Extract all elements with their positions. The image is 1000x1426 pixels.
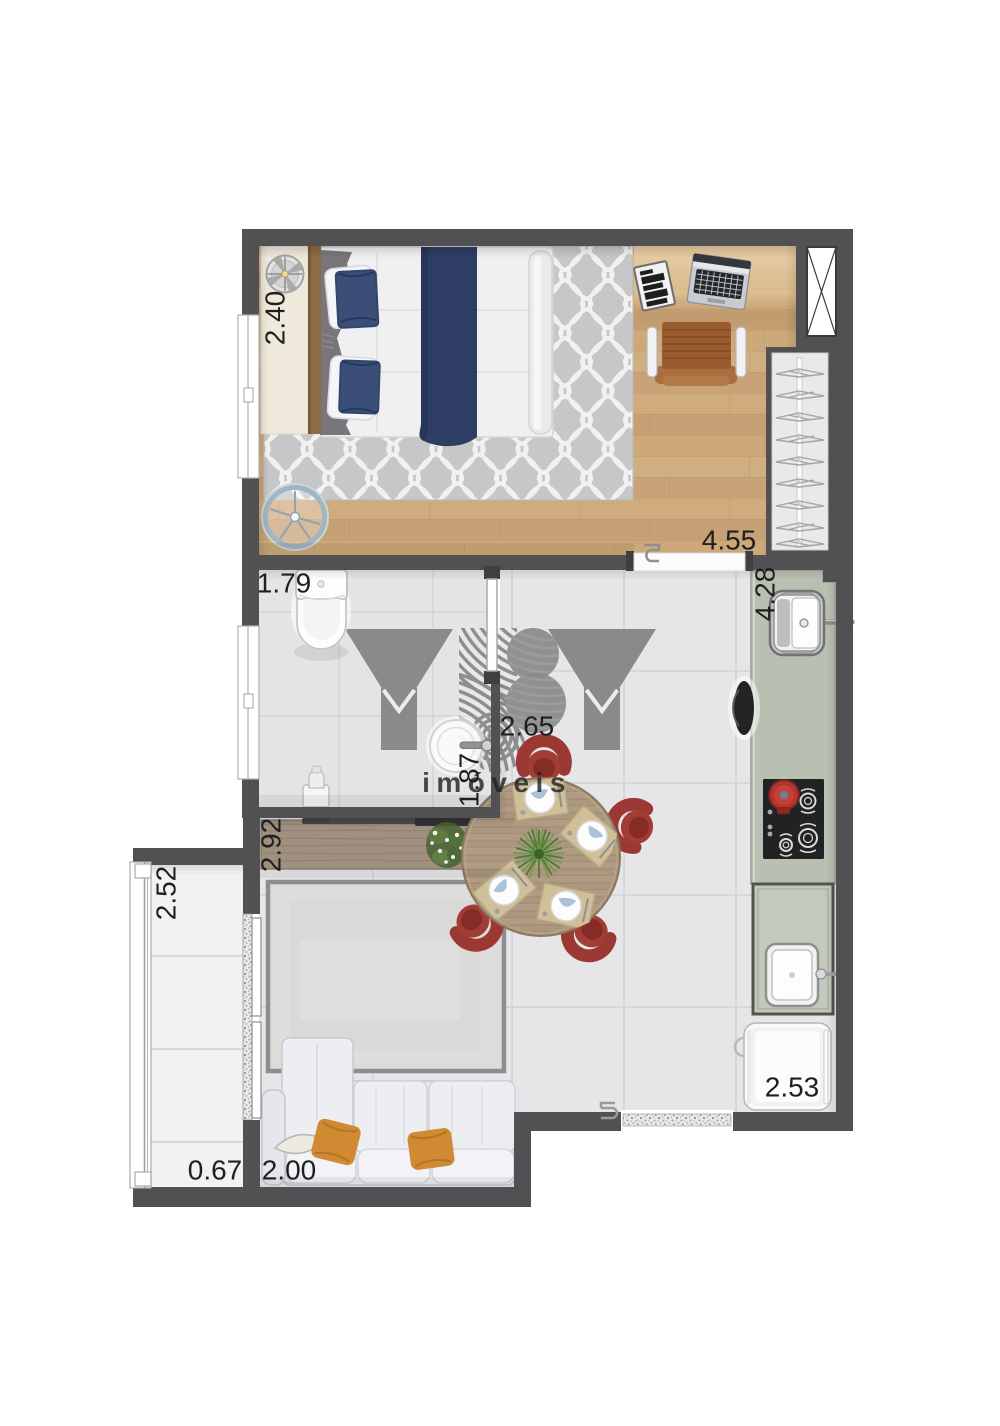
svg-text:1.87: 1.87 [453, 753, 484, 808]
svg-text:2.40: 2.40 [259, 291, 290, 346]
svg-text:2.65: 2.65 [500, 710, 555, 741]
svg-text:0.67: 0.67 [188, 1154, 243, 1185]
svg-text:4.55: 4.55 [702, 524, 757, 555]
svg-text:imóveis: imóveis [422, 767, 572, 798]
svg-text:2.53: 2.53 [765, 1071, 820, 1102]
svg-text:2.52: 2.52 [150, 866, 181, 921]
svg-text:2.92: 2.92 [255, 818, 286, 873]
svg-text:1.79: 1.79 [257, 567, 312, 598]
svg-text:2.00: 2.00 [262, 1154, 317, 1185]
svg-text:4.28: 4.28 [749, 567, 780, 622]
